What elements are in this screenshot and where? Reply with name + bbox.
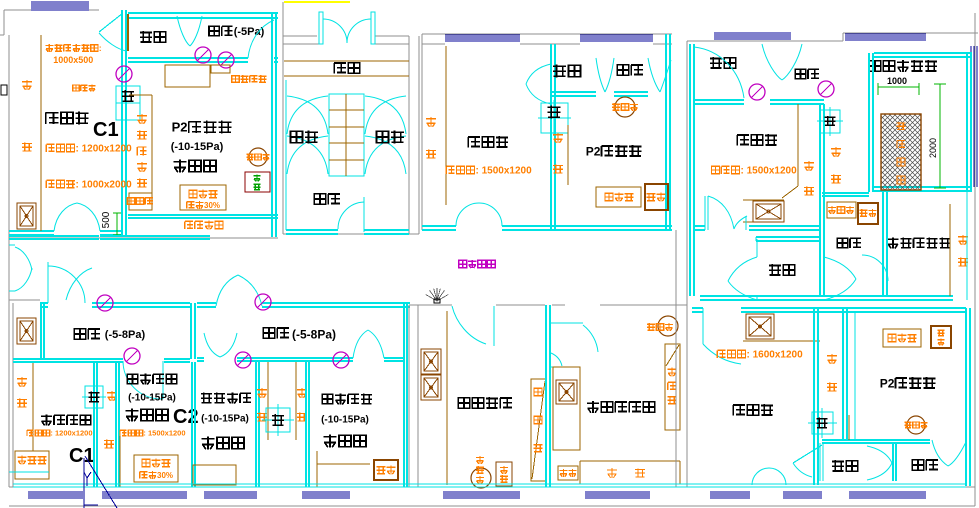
svg-text:(-5Pa): (-5Pa)	[234, 26, 265, 38]
svg-text:(-10-15Pa): (-10-15Pa)	[171, 141, 224, 153]
svg-text:: 1500x1200: : 1500x1200	[741, 166, 798, 177]
svg-text:30%: 30%	[204, 201, 220, 210]
svg-text:: 1000x2000: : 1000x2000	[76, 180, 133, 191]
svg-text:(-10-15Pa): (-10-15Pa)	[201, 414, 249, 425]
svg-text:(-5-8Pa): (-5-8Pa)	[292, 327, 336, 341]
svg-text:1000x500: 1000x500	[53, 55, 93, 65]
svg-text:(-5-8Pa): (-5-8Pa)	[105, 329, 146, 341]
svg-text:2000: 2000	[928, 138, 938, 158]
svg-text:: 1200x1200: : 1200x1200	[76, 144, 133, 155]
svg-text:: 1200x1200: : 1200x1200	[50, 429, 92, 438]
svg-text:P2: P2	[172, 120, 188, 135]
svg-text:P2: P2	[586, 144, 601, 158]
svg-text:30%: 30%	[157, 471, 173, 480]
svg-text:C1: C1	[69, 445, 95, 467]
svg-text:(-10-15Pa): (-10-15Pa)	[321, 415, 369, 426]
svg-text:C1: C1	[93, 119, 119, 141]
svg-text:500: 500	[101, 211, 112, 228]
svg-text:P2: P2	[880, 376, 895, 390]
svg-text::: :	[99, 44, 102, 53]
svg-text:: 1600x1200: : 1600x1200	[747, 350, 804, 361]
svg-text:1000: 1000	[887, 76, 907, 86]
svg-text:: 1500x1200: : 1500x1200	[476, 166, 533, 177]
svg-text:(-10-15Pa): (-10-15Pa)	[128, 393, 176, 404]
svg-text:: 1500x1200: : 1500x1200	[143, 429, 185, 438]
